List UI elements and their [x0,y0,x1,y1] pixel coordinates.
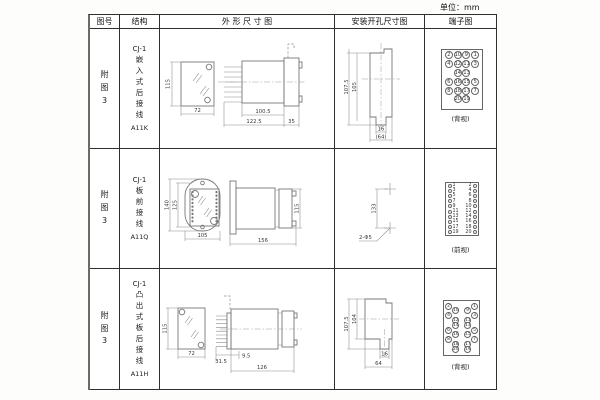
terminal-16: 16 [454,78,462,86]
mounting-drawing-a11k: 107.5 105 16 (64) [335,29,425,149]
dim-hole-callout: 2-Φ5 [359,235,372,241]
document-page: 单位：mm 图号 结构 外 形 尺 寸 图 安装开孔尺寸图 端子图 附 图 3 … [0,0,600,400]
mounting-svg-a11q: 133 2-Φ5 [335,149,425,269]
terminal-19: 19 [462,95,470,103]
terminal-15: 15 [462,78,470,86]
terminal-view-label: (前视) [425,244,496,254]
terminal-row: 818177 [442,86,482,95]
terminal-row: 616155 [442,77,482,86]
dim-pin-length: 31.5 [215,359,227,365]
dim-front-width: 72 [194,108,201,114]
structure-row2: CJ-1 板 前 接 线 A11Q [120,149,160,269]
terminal-slot [473,215,477,219]
terminal-row: 21091 [442,51,482,60]
outline-svg-a11k: 115 72 100.5 122.5 35 [160,29,335,149]
structure-row1: CJ-1 嵌 入 式 后 接 线 A11K [120,29,160,149]
terminal-17: 17 [462,87,470,95]
dim-mount-width: (64) [376,135,387,141]
terminal-1: 1 [471,51,479,59]
terminal-7: 7 [471,87,479,95]
dim-panel: 35 [288,119,295,125]
terminal-6: 6 [445,327,452,334]
terminal-1: 1 [471,303,478,310]
terminal-10: 10 [452,307,459,314]
structure-row3: CJ-1 凸 出 式 板 后 接 线 A11H [120,269,160,390]
outline-svg-a11q: 140 125 105 115 156 [160,149,335,269]
header-terminal: 端子图 [425,15,497,29]
terminal-15: 15 [464,331,471,338]
terminal-4: 4 [445,60,453,68]
terminal-box-rear: 2104121461681820193111351571719 [443,300,480,356]
terminal-14: 14 [454,69,462,77]
header-fig-no: 图号 [90,15,120,29]
terminal-11: 11 [462,60,470,68]
dim-mount-outer: 107.5 [344,316,350,331]
header-mounting: 安装开孔尺寸图 [335,15,425,29]
dim-hole-spacing: 133 [372,203,378,213]
fig-no-row2: 附 图 3 [90,149,120,269]
dim-front-height: 115 [163,323,169,333]
dim-side-height: 115 [295,203,301,213]
dimension-table: 图号 结构 外 形 尺 寸 图 安装开孔尺寸图 端子图 附 图 3 CJ-1 嵌… [88,14,497,390]
terminal-row: 1920 [446,230,478,235]
model-label: A11K [131,124,148,132]
terminal-row: ·1413· [442,69,482,78]
terminal-13: 13 [464,322,471,329]
terminal-slot [473,194,477,198]
terminal-10: 10 [454,51,462,59]
series-label: CJ-1 [133,280,147,288]
dim-depth: 126 [257,365,268,371]
model-label: A11H [131,370,149,378]
terminal-2: 2 [445,51,453,59]
terminal-diagram-a11q: 1234567891011121314151617181920 (前视) [425,149,497,269]
terminal-9: 9 [462,51,470,59]
terminal-slot [473,189,477,193]
terminal-19: 19 [452,230,460,235]
mounting-drawing-a11h: 107.5 104 16 64 [335,269,425,390]
terminal-20: 20 [452,346,459,353]
fig-no-row3: 附 图 3 [90,269,120,390]
terminal-slot [473,184,477,188]
outline-drawing-a11h: 115 72 31.5 9.5 126 [160,269,335,390]
terminal-8: 8 [445,336,452,343]
terminal-slot [473,204,477,208]
terminal-diagram-a11k: 21091412113·1413·616155818177·2019· (背视) [425,29,497,149]
terminal-3: 3 [471,312,478,319]
terminal-20: 20 [464,230,472,235]
terminal-20: 20 [454,95,462,103]
terminal-slot [473,199,477,203]
terminal-row: 412113 [442,60,482,69]
terminal-5: 5 [471,327,478,334]
terminal-18: 18 [454,87,462,95]
dim-mount-tab: 16 [381,352,388,358]
dim-front-outer: 140 [165,199,171,210]
terminal-5: 5 [471,78,479,86]
terminal-7: 7 [471,336,478,343]
terminal-9: 9 [464,307,471,314]
terminal-slot [473,225,477,229]
mounting-svg-a11k: 107.5 105 16 (64) [335,29,425,149]
terminal-14: 14 [452,322,459,329]
terminal-slot [473,220,477,224]
terminal-box-front: 1234567891011121314151617181920 [445,182,479,236]
outline-drawing-a11q: 140 125 105 115 156 [160,149,335,269]
dim-mount-width: 64 [375,361,382,367]
structure-label: 板 前 接 线 [136,186,144,230]
terminal-16: 16 [452,331,459,338]
fig-no-row1: 附 图 3 [90,29,120,149]
model-label: A11Q [131,233,149,241]
terminal-view-label: (背视) [425,361,496,371]
terminal-6: 6 [445,78,453,86]
terminal-2: 2 [445,303,452,310]
dim-front-height: 115 [166,79,172,89]
terminal-8: 8 [445,87,453,95]
dim-front-inner: 125 [173,200,179,210]
structure-label: 嵌 入 式 后 接 线 [136,55,144,120]
outline-svg-a11h: 115 72 31.5 9.5 126 [160,269,335,389]
terminal-box-rear: 21091412113·1413·616155818177·2019· [441,49,483,110]
outline-drawing-a11k: 115 72 100.5 122.5 35 [160,29,335,149]
terminal-12: 12 [454,60,462,68]
series-label: CJ-1 [133,45,147,53]
terminal-diagram-a11h: 2104121461681820193111351571719 (背视) [425,269,497,390]
header-outline: 外 形 尺 寸 图 [160,15,335,29]
series-label: CJ-1 [133,176,147,184]
dim-gap: 9.5 [242,354,250,360]
dim-mount-tab: 16 [378,127,385,133]
terminal-4: 4 [445,312,452,319]
dim-mount-inner: 104 [352,313,358,324]
terminal-slot [473,230,477,234]
mounting-drawing-a11q: 133 2-Φ5 [335,149,425,269]
terminal-slot [473,210,477,214]
dim-front-width: 72 [188,351,195,357]
dim-front-width: 105 [197,233,207,239]
unit-label: 单位：mm [440,2,480,13]
dim-mount-inner: 105 [352,82,358,92]
dim-depth: 100.5 [255,109,270,115]
header-structure: 结构 [120,15,160,29]
dim-mount-outer: 107.5 [344,79,350,94]
terminal-3: 3 [471,60,479,68]
terminal-19: 19 [464,346,471,353]
terminal-13: 13 [462,69,470,77]
structure-label: 凸 出 式 板 后 接 线 [136,290,144,366]
dim-depth: 156 [258,238,269,244]
terminal-row: ·2019· [442,95,482,104]
dim-total: 122.5 [246,119,261,125]
terminal-view-label: (背视) [425,113,496,123]
mounting-svg-a11h: 107.5 104 16 64 [335,269,425,389]
